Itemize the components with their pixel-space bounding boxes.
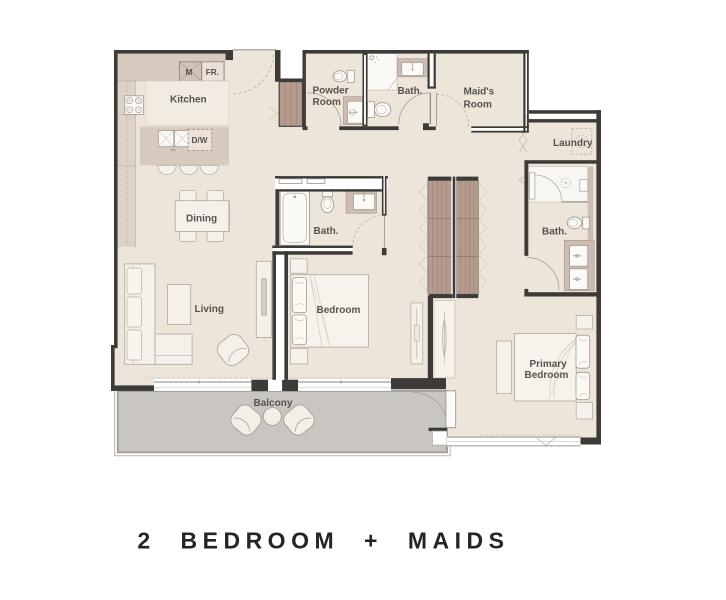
svg-text:Bedroom: Bedroom [525, 370, 569, 381]
svg-text:Bedroom: Bedroom [317, 305, 361, 316]
svg-text:Primary: Primary [530, 359, 568, 370]
svg-text:Living: Living [195, 304, 224, 315]
svg-text:Kitchen: Kitchen [170, 95, 207, 106]
svg-text:Room: Room [464, 100, 492, 111]
svg-text:Bath.: Bath. [314, 226, 339, 237]
svg-text:D/W: D/W [192, 136, 208, 145]
svg-text:Bath.: Bath. [542, 227, 567, 238]
svg-text:2 BEDROOM + MAIDS: 2 BEDROOM + MAIDS [137, 528, 509, 554]
svg-text:Powder: Powder [313, 86, 349, 97]
svg-text:Laundry: Laundry [553, 138, 593, 149]
svg-text:Room: Room [313, 97, 341, 108]
svg-text:Bath.: Bath. [398, 86, 423, 97]
svg-text:Maid's: Maid's [464, 87, 495, 98]
svg-text:M: M [186, 68, 193, 77]
svg-text:FR.: FR. [206, 68, 219, 77]
svg-text:Dining: Dining [186, 214, 217, 225]
